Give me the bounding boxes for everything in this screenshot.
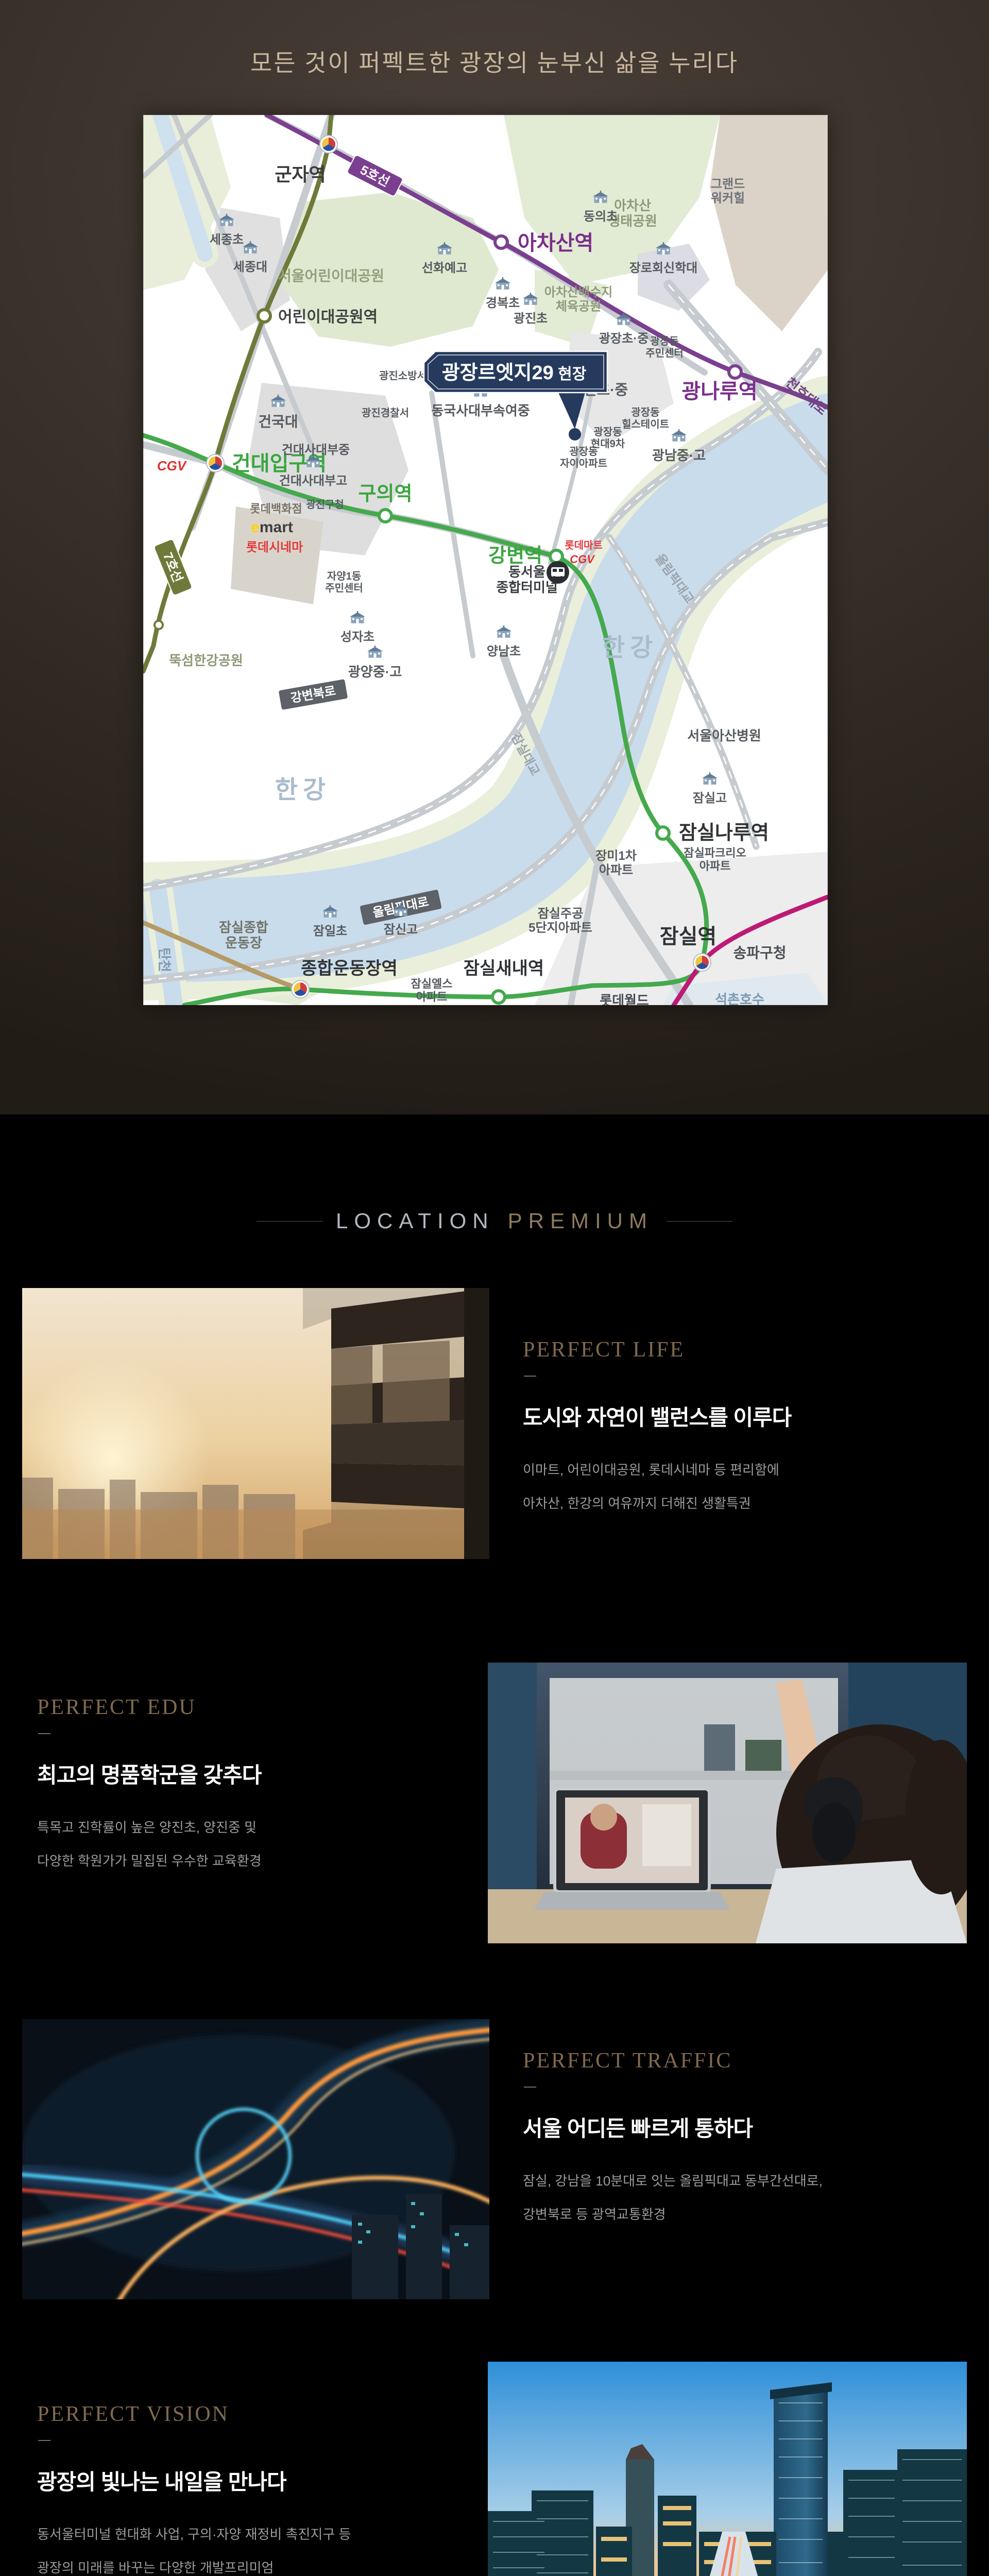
header-rule-left (257, 1221, 322, 1222)
map-label: 뚝섬한강공원 (169, 653, 243, 668)
online-class-photo (488, 1663, 967, 1943)
map-label: 서울어린이대공원 (278, 268, 384, 284)
map-label: 건대사대부중 (282, 443, 350, 457)
station-어린이대공원역 (258, 310, 270, 322)
station-label: 어린이대공원역 (278, 309, 378, 326)
feature-vision-body-line: 광장의 미래를 바꾸는 다양한 개발프리미엄 (37, 2551, 480, 2576)
station-label: 종합운동장역 (301, 959, 398, 978)
map-label: 잠실주공5단지아파트 (528, 907, 592, 935)
sunset-balcony-photo (22, 1288, 489, 1559)
map-label: 잠실고 (693, 791, 727, 805)
map-label: 잠일초 (313, 924, 347, 938)
station-label: 강변역 (488, 545, 542, 567)
station-건대입구역 (207, 454, 224, 472)
feature-traffic: PERFECT TRAFFIC 서울 어디든 빠르게 통하다 잠실, 강남을 1… (523, 2048, 966, 2231)
laptop (534, 1789, 730, 1910)
feature-vision-dash (38, 2440, 50, 2441)
feature-vision-body-line: 동서울터미널 현대화 사업, 구의·자양 재정비 촉진지구 등 (37, 2518, 480, 2551)
map-label: 동의초 (584, 210, 618, 224)
map-label: 한강 (602, 634, 658, 662)
map-label: 그랜드워커힐 (711, 177, 745, 206)
station-뚝섬유원지 (155, 621, 163, 629)
brand-label-롯데마트: 롯데마트 (565, 539, 603, 551)
station-군자역 (320, 135, 337, 153)
map-label: 장로회신학대 (629, 261, 697, 275)
map-label: 광진구청 (306, 499, 344, 511)
feature-vision-eyebrow: PERFECT VISION (37, 2402, 480, 2427)
map-label: 건국대 (258, 414, 298, 430)
hero-section: 모든 것이 퍼펙트한 광장의 눈부신 삶을 누리다 강변북로올림픽대로5호선7호… (0, 0, 989, 1114)
premium-word-location: LOCATION (336, 1209, 494, 1233)
map-label: 잠실엘스아파트 (411, 977, 453, 1003)
feature-traffic-body-line: 강변북로 등 광역교통환경 (523, 2198, 966, 2231)
feature-life: PERFECT LIFE 도시와 자연이 밸런스를 이루다 이마트, 어린이대공… (523, 1337, 966, 1520)
location-map: 강변북로올림픽대로5호선7호선천호대로올림픽대교잠실대교탄천군자역어린이대공원역… (143, 115, 828, 1005)
feature-edu-dash (38, 1733, 50, 1734)
station-아차산역 (495, 236, 507, 248)
station-label: 구의역 (359, 483, 413, 505)
station-label: 잠실나루역 (679, 822, 769, 844)
night-highway-photo (22, 2019, 489, 2299)
brand-label-롯데백화점: 롯데백화점 (250, 502, 302, 515)
map-label: 선화예고 (422, 261, 467, 275)
bus-terminal-icon (547, 561, 569, 584)
map-label: 건대사대부고 (279, 474, 347, 488)
location-premium-header: LOCATION PREMIUM (0, 1209, 989, 1233)
station-강변역 (550, 550, 562, 563)
brand-label-emart: emart (251, 519, 293, 536)
header-rule-right (667, 1221, 732, 1222)
station-label: 광나루역 (681, 380, 757, 403)
map-label: 광진초 (514, 312, 548, 326)
station-잠실나루역 (657, 827, 669, 839)
map-label: 송파구청 (733, 945, 786, 961)
map-label: 서울아산병원 (687, 728, 761, 743)
station-잠실새내역 (492, 991, 505, 1003)
feature-life-headline: 도시와 자연이 밸런스를 이루다 (523, 1400, 966, 1432)
feature-edu-body-line: 특목고 진학률이 높은 양진초, 양진중 및 (37, 1811, 480, 1844)
map-label: 광양중·고 (348, 664, 402, 680)
station-label: 아차산역 (518, 232, 593, 255)
map-label: 세종초 (210, 233, 244, 247)
feature-traffic-dash (524, 2087, 536, 2088)
feature-edu-eyebrow: PERFECT EDU (37, 1695, 480, 1720)
brand-label-CGV: CGV (157, 458, 187, 473)
station-종합운동장역 (292, 980, 309, 998)
station-구의역 (379, 510, 391, 522)
city-skyline-photo (488, 2362, 967, 2576)
feature-vision-headline: 광장의 빛나는 내일을 만나다 (37, 2465, 480, 2496)
map-label: 잠신고 (384, 923, 418, 937)
feature-edu: PERFECT EDU 최고의 명품학군을 갖추다 특목고 진학률이 높은 양진… (37, 1695, 480, 1878)
map-label: 잠실종합운동장 (219, 920, 268, 951)
station-label: 잠실역 (660, 925, 717, 948)
map-label: 광진소방서 (379, 370, 427, 382)
location-map-svg: 강변북로올림픽대로5호선7호선천호대로올림픽대교잠실대교탄천군자역어린이대공원역… (143, 115, 828, 1005)
station-잠실역 (693, 954, 711, 971)
feature-life-body-line: 이마트, 어린이대공원, 롯데시네마 등 편리함에 (523, 1453, 966, 1487)
feature-life-body-line: 아차산, 한강의 여유까지 더해진 생활특권 (523, 1487, 966, 1520)
feature-edu-body-line: 다양한 학원가가 밀집된 우수한 교육환경 (37, 1844, 480, 1878)
brand-label-CGV: CGV (570, 553, 595, 566)
premium-word-premium: PREMIUM (508, 1209, 653, 1233)
feature-traffic-body-line: 잠실, 강남을 10분대로 잇는 올림픽대교 동부간선대로, (523, 2164, 966, 2198)
map-rotated-label: 탄천 (157, 947, 172, 972)
station-광나루역 (729, 366, 741, 378)
map-label: 롯데월드 (600, 993, 649, 1005)
map-label: 경복초 (486, 296, 520, 310)
feature-life-dash (524, 1376, 536, 1377)
map-label: 광진경찰서 (362, 407, 409, 419)
feature-edu-headline: 최고의 명품학군을 갖추다 (37, 1758, 480, 1789)
page-title: 모든 것이 퍼펙트한 광장의 눈부신 삶을 누리다 (0, 44, 989, 78)
map-label: 동국사대부속여중 (431, 403, 530, 418)
map-label: 장미1차아파트 (595, 849, 637, 877)
site-badge-label: 광장르엣지29 현장 (442, 362, 587, 384)
map-label: 세종대 (233, 260, 267, 274)
station-label: 잠실새내역 (464, 959, 544, 978)
feature-traffic-eyebrow: PERFECT TRAFFIC (523, 2048, 966, 2073)
feature-vision: PERFECT VISION 광장의 빛나는 내일을 만나다 동서울터미널 현대… (37, 2402, 480, 2576)
station-label: 군자역 (275, 164, 326, 185)
map-label: 석촌호수 (715, 992, 764, 1005)
map-label: 광장초·중 (599, 332, 649, 346)
feature-life-eyebrow: PERFECT LIFE (523, 1337, 966, 1362)
map-label: 한강 (275, 776, 331, 804)
feature-traffic-headline: 서울 어디든 빠르게 통하다 (523, 2111, 966, 2143)
map-label: 광남중·고 (652, 448, 706, 463)
brand-label-롯데시네마: 롯데시네마 (246, 540, 303, 554)
map-label: 양남초 (487, 645, 521, 658)
map-label: 성자초 (340, 630, 374, 644)
